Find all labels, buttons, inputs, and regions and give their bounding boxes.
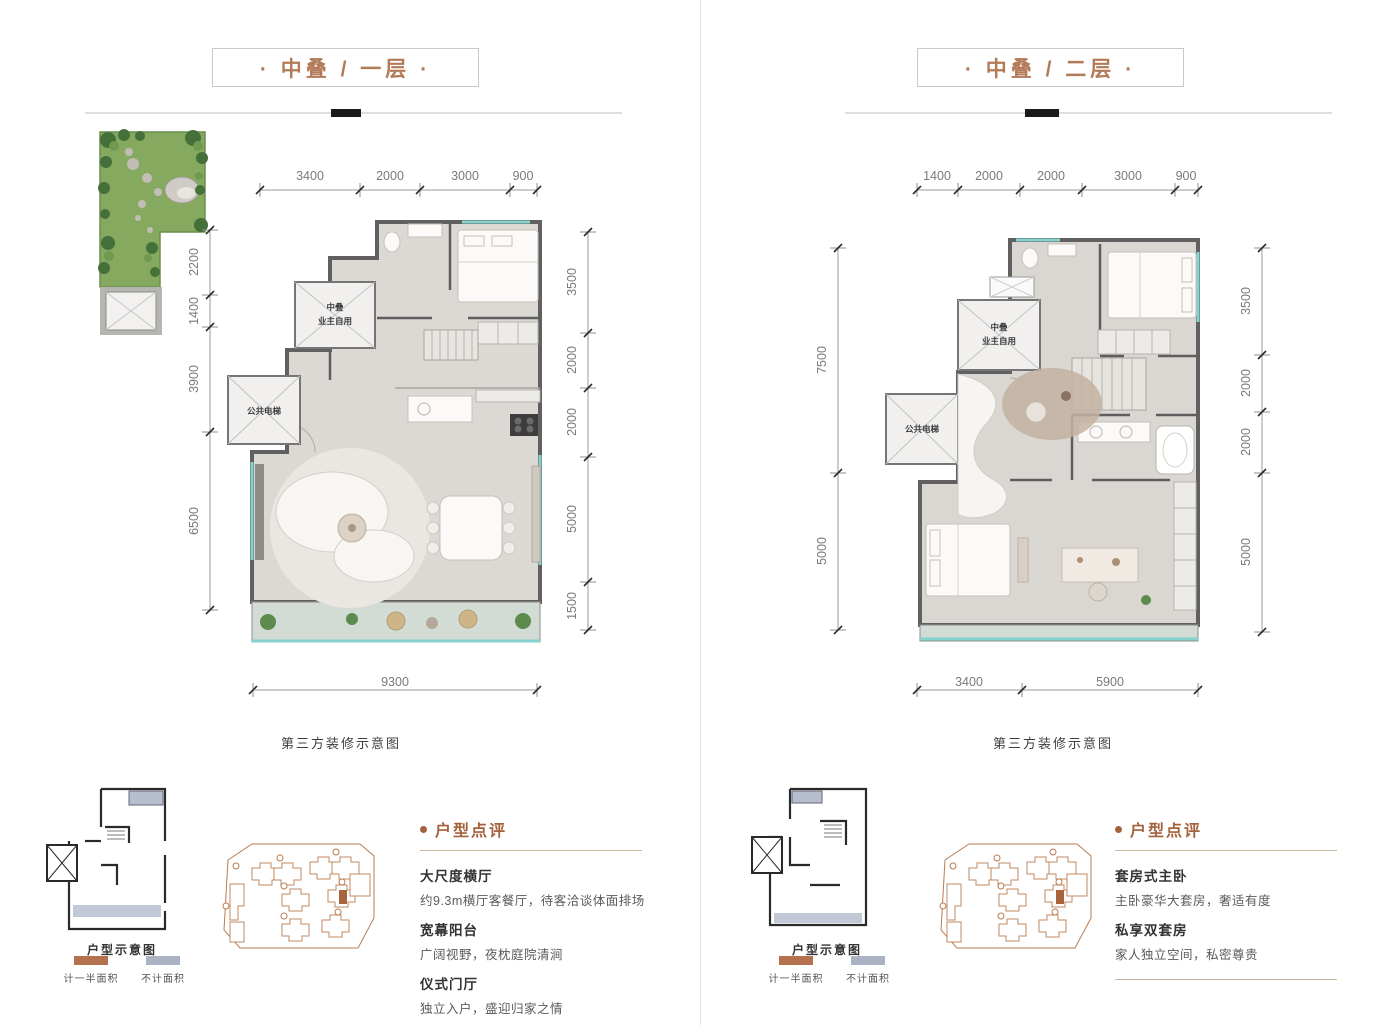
site-highlight-unit bbox=[339, 890, 347, 904]
floor1-caption: 第三方装修示意图 bbox=[231, 733, 451, 752]
svg-text:2000: 2000 bbox=[1239, 428, 1253, 456]
bullet-icon bbox=[1115, 826, 1122, 833]
thumb-stairs bbox=[107, 831, 125, 839]
floorplan-brochure-page: · 中叠 / 一层 · bbox=[0, 0, 1400, 1025]
svg-text:2000: 2000 bbox=[1037, 169, 1065, 183]
plant bbox=[260, 614, 276, 630]
svg-text:公共电梯: 公共电梯 bbox=[905, 424, 940, 434]
svg-text:业主自用: 业主自用 bbox=[318, 316, 352, 326]
legend-item-no-area: 不计面积 bbox=[832, 956, 904, 985]
ac-platform bbox=[990, 277, 1034, 297]
side-shelf bbox=[532, 466, 540, 562]
section-rule bbox=[85, 109, 622, 117]
no-area-swatch bbox=[146, 956, 180, 965]
floor1-review-section: 户型点评 大尺度横厅 约9.3m横厅客餐厅，待客洽谈体面排场 宽幕阳台 广阔视野… bbox=[420, 817, 642, 1025]
review-item: 套房式主卧 主卧豪华大套房，奢适有度 bbox=[1115, 865, 1337, 909]
svg-text:3400: 3400 bbox=[296, 169, 324, 183]
svg-text:2000: 2000 bbox=[1239, 369, 1253, 397]
svg-text:中叠: 中叠 bbox=[326, 302, 344, 312]
floor2-legend: 计一半面积 不计面积 bbox=[760, 956, 904, 985]
svg-text:1400: 1400 bbox=[187, 297, 201, 325]
thumb-elevator bbox=[752, 837, 782, 873]
legend-item-half-area: 计一半面积 bbox=[760, 956, 832, 985]
svg-text:900: 900 bbox=[1176, 169, 1197, 183]
svg-text:9300: 9300 bbox=[381, 675, 409, 689]
svg-text:5000: 5000 bbox=[565, 505, 579, 533]
floor1-siteplan bbox=[218, 840, 378, 952]
floorplan-level1-drawing: 中叠 业主自用 公共电梯 bbox=[0, 0, 700, 780]
site-buildings bbox=[947, 857, 1087, 942]
floor1-thumbnail-plan bbox=[45, 785, 175, 935]
floor2-caption: 第三方装修示意图 bbox=[943, 733, 1163, 752]
vanity bbox=[408, 224, 442, 237]
chair bbox=[1089, 583, 1107, 601]
public-elevator: 公共电梯 bbox=[886, 394, 958, 464]
thumb-elevator bbox=[47, 845, 77, 881]
svg-text:5000: 5000 bbox=[815, 537, 829, 565]
side-table bbox=[1026, 402, 1046, 422]
pouf bbox=[387, 612, 405, 630]
floor2-review-section: 户型点评 套房式主卧 主卧豪华大套房，奢适有度 私享双套房 家人独立空间，私密尊… bbox=[1115, 817, 1337, 980]
svg-text:3900: 3900 bbox=[187, 365, 201, 393]
svg-text:1400: 1400 bbox=[923, 169, 951, 183]
bench bbox=[1018, 538, 1028, 582]
no-area-swatch bbox=[851, 956, 885, 965]
review-heading: 户型点评 bbox=[1115, 817, 1337, 841]
toilet bbox=[384, 232, 400, 252]
svg-text:2000: 2000 bbox=[376, 169, 404, 183]
half-area-swatch bbox=[779, 956, 813, 965]
floor1-legend: 计一半面积 不计面积 bbox=[55, 956, 199, 985]
rug bbox=[1002, 368, 1102, 440]
svg-text:3400: 3400 bbox=[955, 675, 983, 689]
svg-text:2200: 2200 bbox=[187, 248, 201, 276]
svg-text:6500: 6500 bbox=[187, 507, 201, 535]
thumb-walls bbox=[770, 789, 866, 925]
dim-chain-right: 3500 2000 2000 5000 1500 bbox=[565, 228, 596, 634]
svg-text:公共电梯: 公共电梯 bbox=[247, 406, 282, 416]
section-rule bbox=[845, 109, 1332, 117]
dim-chain-top: 1400 2000 2000 3000 900 bbox=[913, 169, 1202, 197]
review-item: 仪式门厅 独立入户，盛迎归家之情 bbox=[420, 973, 642, 1017]
media-console bbox=[255, 464, 264, 560]
desk bbox=[1062, 548, 1138, 582]
dim-chain-top: 3400 2000 3000 900 bbox=[256, 169, 541, 197]
floor2-siteplan bbox=[935, 840, 1095, 952]
review-heading: 户型点评 bbox=[420, 817, 642, 841]
bullet-icon bbox=[420, 826, 427, 833]
wardrobe-strip bbox=[1174, 482, 1196, 610]
vanity bbox=[1048, 244, 1076, 256]
review-body: 套房式主卧 主卧豪华大套房，奢适有度 私享双套房 家人独立空间，私密尊贵 bbox=[1115, 850, 1337, 980]
svg-text:业主自用: 业主自用 bbox=[982, 336, 1016, 346]
private-elevator: 中叠 业主自用 bbox=[295, 282, 375, 348]
svg-text:3500: 3500 bbox=[565, 268, 579, 296]
svg-text:900: 900 bbox=[513, 169, 534, 183]
thumb-stairs bbox=[824, 825, 842, 837]
svg-text:5900: 5900 bbox=[1096, 675, 1124, 689]
review-item: 私享双套房 家人独立空间，私密尊贵 bbox=[1115, 919, 1337, 963]
wardrobe bbox=[478, 322, 538, 344]
site-highlight-unit bbox=[1056, 890, 1064, 904]
private-elevator: 中叠 业主自用 bbox=[958, 300, 1040, 370]
dim-chain-left: 7500 5000 bbox=[815, 244, 846, 634]
garden-elevator bbox=[100, 287, 162, 335]
stove bbox=[510, 414, 538, 436]
review-heading-text: 户型点评 bbox=[1130, 817, 1202, 841]
legend-item-no-area: 不计面积 bbox=[127, 956, 199, 985]
svg-text:2000: 2000 bbox=[975, 169, 1003, 183]
dim-chain-bottom: 9300 bbox=[249, 675, 541, 697]
svg-text:5000: 5000 bbox=[1239, 538, 1253, 566]
svg-text:3000: 3000 bbox=[1114, 169, 1142, 183]
review-item: 宽幕阳台 广阔视野，夜枕庭院清涧 bbox=[420, 919, 642, 963]
stairs bbox=[424, 330, 478, 360]
legend-item-half-area: 计一半面积 bbox=[55, 956, 127, 985]
site-buildings bbox=[230, 857, 370, 942]
cat bbox=[1061, 391, 1071, 401]
half-area-swatch bbox=[74, 956, 108, 965]
dim-chain-right: 3500 2000 2000 5000 bbox=[1239, 244, 1270, 636]
floorplan-level2-drawing: 中叠 业主自用 公共电梯 bbox=[700, 0, 1400, 780]
svg-text:2000: 2000 bbox=[565, 408, 579, 436]
dim-chain-left: 2200 1400 3900 6500 bbox=[187, 226, 218, 614]
svg-text:1500: 1500 bbox=[565, 592, 579, 620]
dining-table bbox=[440, 496, 502, 560]
svg-text:2000: 2000 bbox=[565, 346, 579, 374]
balcony bbox=[920, 625, 1198, 641]
svg-text:3000: 3000 bbox=[451, 169, 479, 183]
review-body: 大尺度横厅 约9.3m横厅客餐厅，待客洽谈体面排场 宽幕阳台 广阔视野，夜枕庭院… bbox=[420, 850, 642, 1025]
svg-text:中叠: 中叠 bbox=[990, 322, 1008, 332]
plant bbox=[1141, 595, 1151, 605]
floor2-thumbnail-plan bbox=[750, 785, 880, 935]
garden-rockery-top bbox=[177, 187, 195, 199]
toilet bbox=[1022, 248, 1038, 268]
svg-text:3500: 3500 bbox=[1239, 287, 1253, 315]
dim-chain-bottom: 3400 5900 bbox=[913, 675, 1202, 697]
review-item: 大尺度横厅 约9.3m横厅客餐厅，待客洽谈体面排场 bbox=[420, 865, 642, 909]
public-elevator: 公共电梯 bbox=[228, 376, 300, 444]
svg-text:7500: 7500 bbox=[815, 346, 829, 374]
review-heading-text: 户型点评 bbox=[435, 817, 507, 841]
